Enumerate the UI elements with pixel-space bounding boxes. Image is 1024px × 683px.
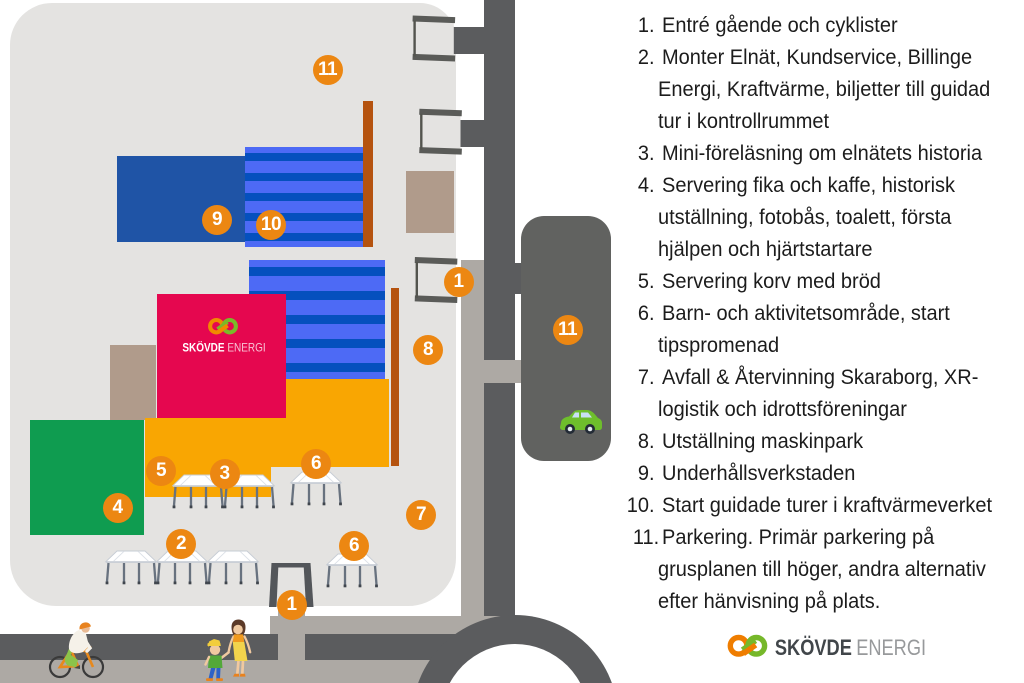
svg-text:SKÖVDE: SKÖVDE — [775, 635, 852, 660]
svg-text:ENERGI: ENERGI — [856, 635, 926, 660]
